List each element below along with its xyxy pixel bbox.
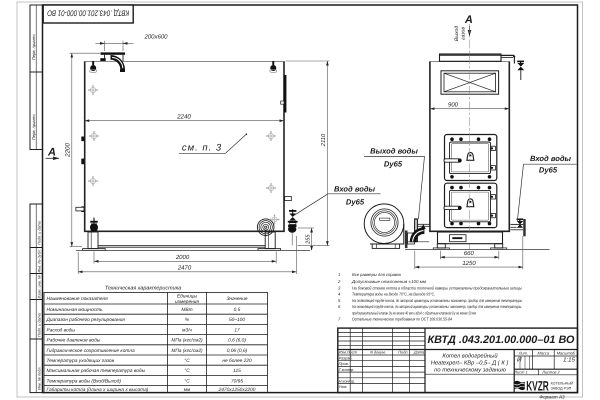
svg-text:МПа (кгс/см2): МПа (кгс/см2) [171,338,203,344]
svg-text:Котел водогрейный: Котел водогрейный [442,353,498,360]
svg-text:200х600: 200х600 [143,34,168,41]
svg-text:Расход воды: Расход воды [47,327,76,333]
svg-text:Наименование показателя: Наименование показателя [47,296,109,302]
svg-text:м3/ч: м3/ч [182,327,192,333]
svg-text:900: 900 [448,101,459,108]
svg-text:Масштаб: Масштаб [557,350,576,355]
svg-text:КВТД .043.201.00.000-01 ВО: КВТД .043.201.00.000-01 ВО [47,9,129,18]
svg-text:МВт: МВт [181,307,192,313]
svg-text:1:15: 1:15 [563,357,575,364]
svg-text:измерения: измерения [175,300,199,305]
svg-text:115: 115 [233,368,241,374]
svg-text:Максимальная рабочая температу: Максимальная рабочая температура воды [47,368,146,374]
svg-text:Лист 1: Лист 1 [513,370,527,375]
svg-text:Т.контр.: Т.контр. [339,367,355,372]
svg-text:Дата: Дата [413,350,425,355]
svg-text:Вход воды: Вход воды [334,185,376,194]
svg-text:Перв. примен.: Перв. примен. [31,33,36,60]
svg-text:Перв. примен.: Перв. примен. [31,113,36,140]
svg-text:по техническому заданию: по техническому заданию [434,367,506,374]
svg-text:Температура уходящих газов: Температура уходящих газов [47,358,115,364]
svg-text:Выход воды: Выход воды [370,146,418,155]
svg-text:Габариты котла (длина х ширина: Габариты котла (длина х ширина х высота) [47,387,149,393]
svg-text:На боковой стенке котла в обла: На боковой стенке котла в области топочн… [352,285,522,290]
svg-text:Формат А3: Формат А3 [539,395,565,400]
svg-text:°С: °С [184,368,190,374]
svg-text:KVZR: KVZR [526,378,549,393]
svg-text:Рабочее давление воды: Рабочее давление воды [47,338,101,344]
svg-text:2240: 2240 [176,114,191,121]
svg-text:ЗАВОД РЭП: ЗАВОД РЭП [551,386,572,390]
svg-text:КОТЕЛЬНЫЙ: КОТЕЛЬНЫЙ [551,381,574,386]
svg-text:Гидравлическое сопротивление к: Гидравлическое сопротивление котла [47,348,135,354]
svg-text:1250: 1250 [462,260,476,267]
svg-text:°С: °С [184,378,190,384]
svg-text:Инв. № подл.: Инв. № подл. [38,366,42,390]
svg-text:Техническая характеристика: Техническая характеристика [105,286,181,292]
svg-text:А: А [464,14,473,26]
svg-text:2000: 2000 [175,254,190,261]
svg-text:Температура воды на Входе 70°С: Температура воды на Входе 70°С, на Выход… [352,292,435,297]
svg-text:МПа (кгс/см2): МПа (кгс/см2) [171,348,203,354]
svg-text:Взам. инв. №: Взам. инв. № [38,275,42,298]
svg-text:0,5: 0,5 [234,307,241,313]
svg-text:предохранительный клапан Dy н: предохранительный клапан Dy не менее 40 … [352,310,476,315]
svg-text:50–100: 50–100 [229,317,245,323]
svg-text:17: 17 [234,327,240,333]
svg-text:Масса: Масса [538,350,550,355]
svg-text:мм: мм [184,388,191,393]
svg-text:%: % [185,317,190,323]
svg-text:Изм.Лист: Изм.Лист [339,350,358,355]
svg-text:Heatexpert– КВр –0,5– Д ( К ): Heatexpert– КВр –0,5– Д ( К ) [431,360,509,367]
svg-text:2470х1250х2200: 2470х1250х2200 [218,387,256,393]
svg-text:Вход воды: Вход воды [530,154,572,163]
svg-text:Dy65: Dy65 [384,160,403,169]
svg-text:Все размеры для справок: Все размеры для справок [352,272,402,277]
svg-text:0,6 (6,0): 0,6 (6,0) [228,338,246,344]
svg-text:см. п. 3: см. п. 3 [182,143,222,154]
svg-text:Подп. и дата: Подп. и дата [38,313,42,337]
svg-text:Листов 2: Листов 2 [541,370,560,375]
svg-text:КВТД .043.201.00.000–01 ВО: КВТД .043.201.00.000–01 ВО [428,334,576,346]
svg-text:Выход: Выход [454,26,460,41]
svg-text:Н.контр.: Н.контр. [339,378,355,383]
svg-text:не более 220: не более 220 [222,358,252,364]
svg-text:На подводящей трубе котла, до: На подводящей трубе котла, до запорной а… [352,298,522,303]
svg-text:И: И [517,357,522,364]
svg-text:Лит.: Лит. [518,350,528,355]
svg-text:газов: газов [460,27,466,40]
svg-text:2470: 2470 [177,265,192,272]
svg-text:1: 1 [338,272,340,277]
svg-text:Подп.: Подп. [398,350,408,355]
svg-text:Разраб.: Разраб. [339,356,353,361]
svg-text:Значение: Значение [226,296,247,302]
svg-text:70/95: 70/95 [231,378,243,384]
svg-text:А: А [47,147,56,159]
svg-text:Пров.: Пров. [339,361,349,366]
svg-text:На отводящей трубе котла, до з: На отводящей трубе котла, до запорной ар… [352,304,522,309]
svg-text:0,06 (0,6): 0,06 (0,6) [227,348,248,354]
svg-text:Номинальная мощность: Номинальная мощность [47,307,104,313]
svg-text:Допустимые отклонения ±100 мм: Допустимые отклонения ±100 мм [351,279,426,284]
svg-text:2200: 2200 [64,143,71,158]
svg-text:Утв.: Утв. [339,384,348,389]
svg-text:Единицы: Единицы [177,294,198,300]
svg-text:Dy65: Dy65 [346,197,365,206]
svg-text:660: 660 [464,250,475,257]
svg-text:Dy65: Dy65 [539,165,558,174]
svg-text:Диапазон рабочего регулировани: Диапазон рабочего регулирования [46,317,126,323]
svg-text:Остальные технические требован: Остальные технические требования по ОСТ … [352,317,453,322]
svg-text:Подп. и дата: Подп. и дата [38,221,42,245]
svg-text:Инв. № дубл.: Инв. № дубл. [38,249,42,272]
svg-text:°С: °С [184,358,190,364]
svg-text:N докум.: N докум. [370,350,386,355]
svg-text:2110: 2110 [320,133,327,147]
svg-text:255: 255 [305,234,311,245]
svg-text:Температура воды (Вход/Выход): Температура воды (Вход/Выход) [47,378,122,384]
